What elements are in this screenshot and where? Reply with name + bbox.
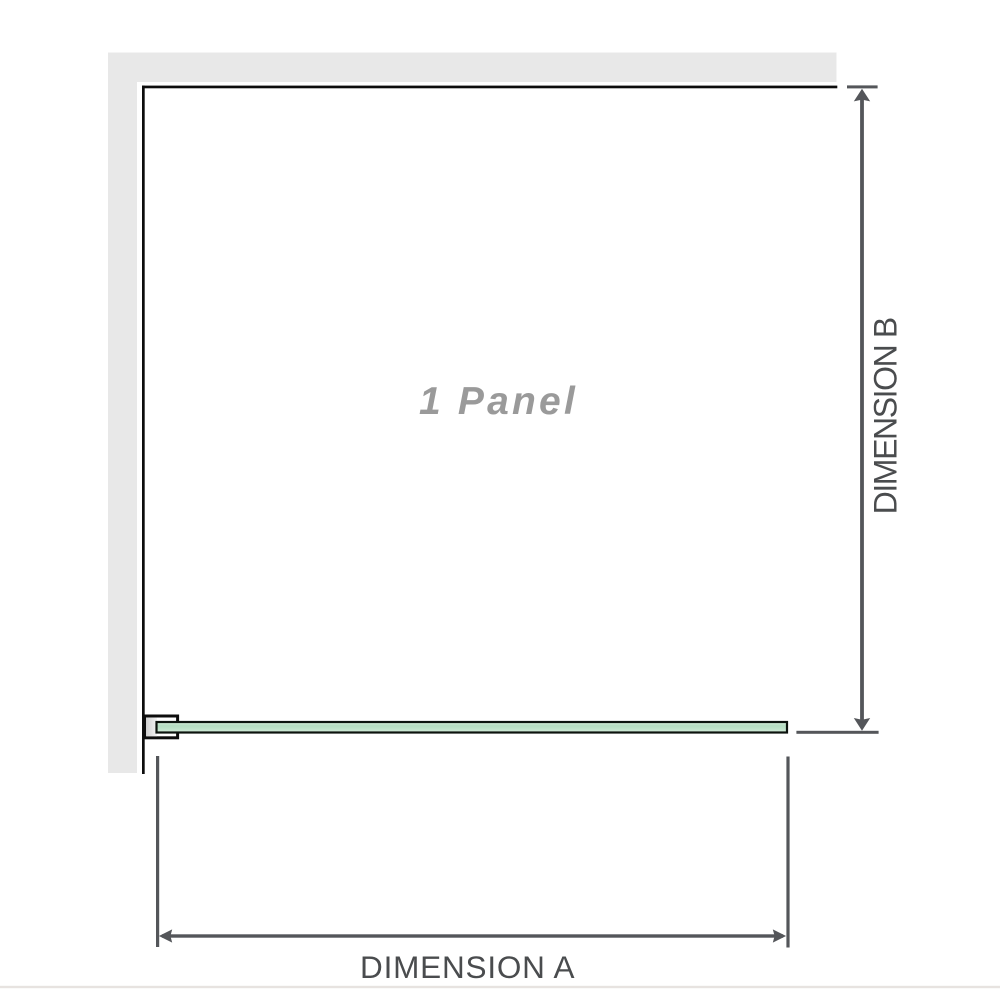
- svg-text:DIMENSION B: DIMENSION B: [867, 318, 903, 514]
- svg-text:DIMENSION A: DIMENSION A: [360, 949, 575, 985]
- svg-text:1 Panel: 1 Panel: [419, 380, 578, 423]
